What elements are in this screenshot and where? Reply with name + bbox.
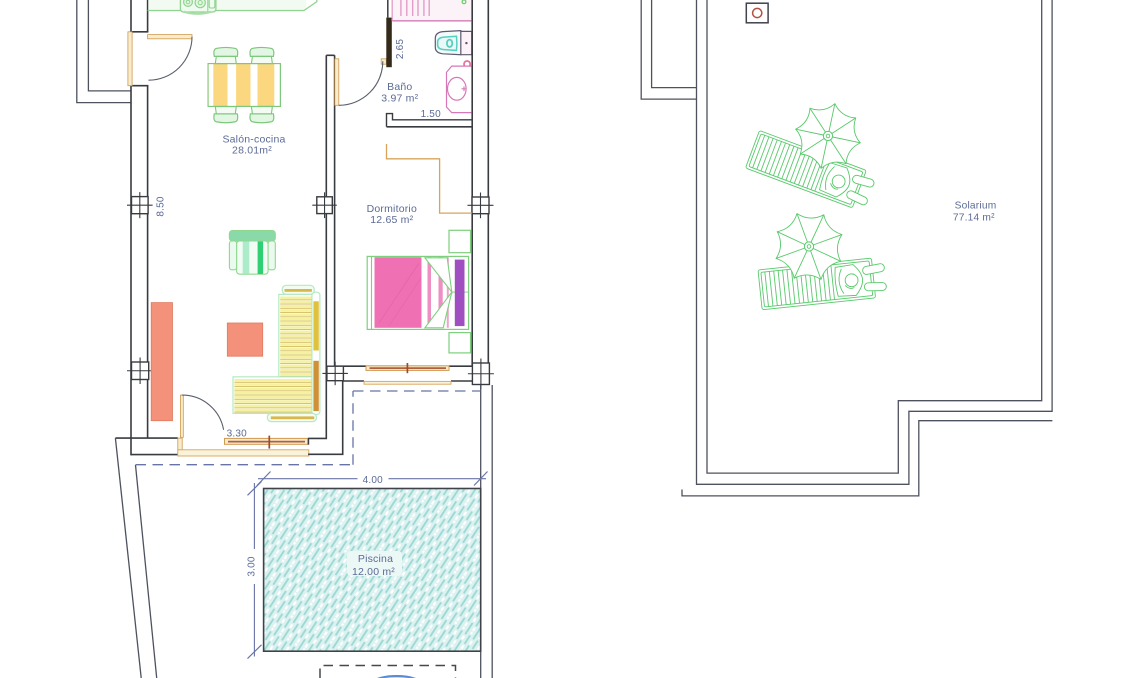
svg-text:2.65: 2.65 — [395, 39, 406, 60]
svg-text:4.00: 4.00 — [363, 475, 384, 486]
svg-text:12.65 m²: 12.65 m² — [370, 214, 413, 226]
svg-text:8.50: 8.50 — [156, 196, 167, 217]
svg-text:Solarium: Solarium — [955, 201, 997, 212]
svg-text:Baño: Baño — [387, 81, 412, 93]
svg-text:Dormitorio: Dormitorio — [367, 203, 417, 215]
svg-text:77.14 m²: 77.14 m² — [953, 213, 995, 224]
svg-text:28.01m²: 28.01m² — [232, 145, 272, 157]
svg-text:12.00 m²: 12.00 m² — [352, 566, 395, 578]
svg-text:3.30: 3.30 — [227, 428, 248, 439]
svg-text:Piscina: Piscina — [358, 553, 393, 565]
svg-text:3.00: 3.00 — [247, 556, 258, 577]
svg-text:3.97 m²: 3.97 m² — [381, 93, 418, 105]
svg-text:1.50: 1.50 — [421, 109, 442, 120]
